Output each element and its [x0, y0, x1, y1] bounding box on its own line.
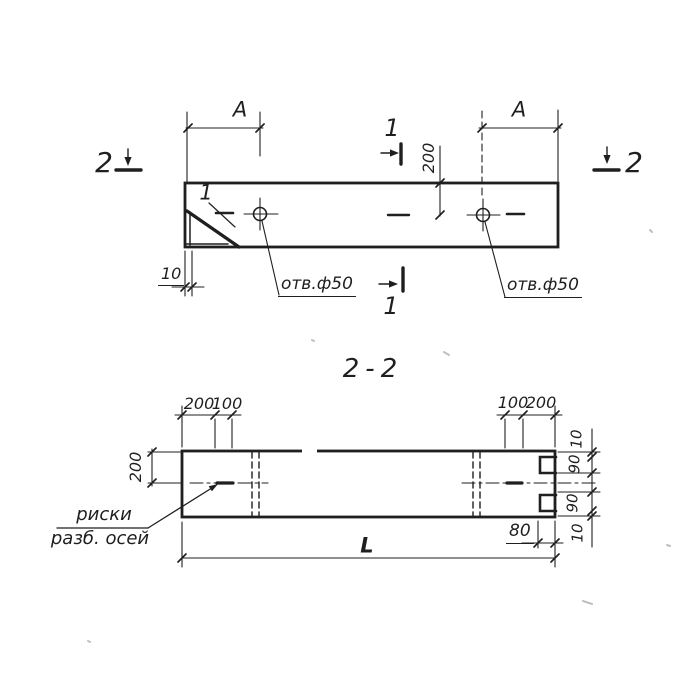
hole-right-leader [485, 222, 505, 297]
notch-upper [540, 457, 556, 473]
dim-top-right-200-label: 200 [526, 395, 557, 411]
dim-right-10-top-label: 10 [570, 429, 585, 448]
dim-a-right-label: A [512, 100, 526, 121]
section-2-marker-left [116, 149, 141, 170]
hole-left [216, 198, 278, 230]
corner-gusset-detail [186, 203, 239, 247]
axis-marks-label-line1: риски [76, 506, 132, 524]
plate-outline [185, 183, 558, 247]
dim-right-10-bottom-label: 10 [571, 523, 586, 542]
section-title: 2-2 [343, 356, 403, 382]
drawing-linework [0, 0, 700, 700]
section-1-label-bottom: 1 [383, 294, 398, 318]
section-1-label-top: 1 [384, 116, 399, 140]
hidden-hole-lines [252, 452, 480, 516]
dim-left-200-label: 200 [128, 452, 144, 483]
dim-right-90-bottom-label: 90 [566, 493, 581, 512]
section-2-label-left: 2 [95, 149, 113, 177]
hole-left-callout: отв.ф50 [278, 276, 356, 297]
section-1-marker-bottom [379, 268, 403, 291]
hole-right-callout: отв.ф50 [504, 277, 582, 298]
section-outline [182, 451, 555, 517]
detail-1-label: 1 [199, 183, 212, 204]
dim-length-label: L [360, 536, 373, 557]
dim-top-right-100-label: 100 [498, 395, 529, 411]
dim-80-label: 80 [506, 523, 534, 544]
dim-10-top-view-label: 10 [158, 266, 184, 286]
dim-a-left [184, 112, 264, 182]
dim-200-top-view-label: 200 [421, 143, 437, 174]
dim-top-left-100-label: 100 [212, 396, 243, 412]
section-1-marker-top [381, 144, 401, 164]
scan-gap [302, 446, 317, 455]
dim-right-90-top-label: 90 [568, 454, 583, 473]
axis-marks-label-line2: разб. осей [51, 530, 149, 548]
section-2-label-right: 2 [625, 149, 643, 177]
drawing-sheet: 2 2 1 1 1 A A 200 10 отв.ф50 отв.ф50 2-2… [0, 0, 700, 700]
section-2-marker-right [594, 147, 619, 170]
notch-lower [540, 495, 556, 511]
hole-left-leader [262, 221, 279, 295]
hole-right [467, 199, 524, 231]
dim-a-left-label: A [233, 100, 247, 121]
dim-200-section-left [148, 448, 181, 487]
dims-top-right [497, 406, 562, 448]
dim-top-left-200-label: 200 [184, 396, 215, 412]
